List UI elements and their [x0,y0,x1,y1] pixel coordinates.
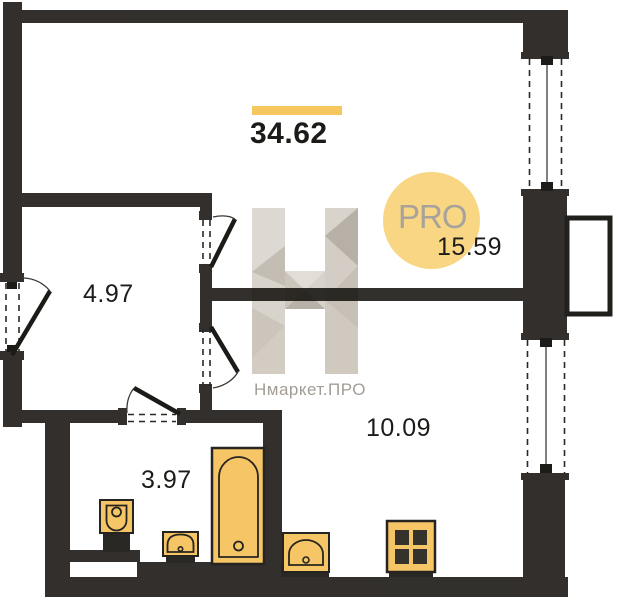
bathroom-door-jamb-left [118,408,127,425]
wall-hall-vertical-c [200,386,212,413]
window-connector [541,182,553,191]
toilet-icon [100,500,133,552]
door-connector [7,282,17,289]
wall-bathroom-kitchen [263,412,282,577]
door-jamb [199,211,212,220]
wall-left-bottom [45,423,70,597]
wall-bottom [45,577,568,597]
window-sill [521,473,569,480]
wall-top [3,10,568,23]
watermark-brand-label: Нмаркет.ПРО [254,380,366,400]
total-area-accent-bar [252,106,342,115]
kitchen-area-label: 10.09 [366,414,431,443]
entrance-door-leaf [12,291,50,355]
stove-burner [395,530,409,545]
hallway-area-label: 4.97 [83,280,134,309]
living-door-arc [213,216,235,219]
stove-burner [413,549,427,564]
window-connector [540,464,552,473]
floor-plan: 34.62 PRO 15.59 4.97 10.09 3.97 Нмаркет.… [0,0,617,600]
wall-left-upper [3,2,22,275]
stove-icon [387,521,435,577]
stove-body [387,521,435,572]
window-connector [540,338,552,347]
wall-hall-top [3,193,212,207]
entrance-jamb-top [0,273,24,282]
pro-badge-label: PRO [398,198,467,236]
wall-living-kitchen [212,288,523,301]
entrance-door-arc [24,278,50,291]
wall-hall-vertical-b [200,266,212,325]
stove-burner [395,549,409,564]
toilet-tank [103,533,130,552]
balcony-outline [567,218,610,314]
wall-bathroom-top-left [3,410,127,423]
washbasin-icon [163,532,198,563]
stove-burner [413,530,427,545]
living-door-leaf [211,219,235,267]
kitchen-sink-icon [281,533,329,577]
living-room-area-label: 15.59 [437,233,502,262]
wall-right-pier [523,196,567,338]
kitchen-door-arc [213,372,238,388]
bathroom-door-leaf [134,388,180,414]
kitchen-door-leaf [211,327,238,372]
wall-right-bottom [523,480,565,597]
wall-right-top-corner [523,10,568,55]
window-connector [541,56,553,65]
bathroom-door-arc [127,388,134,413]
bathtub-icon [212,448,264,564]
total-area-label: 34.62 [250,117,328,151]
bathroom-area-label: 3.97 [141,466,192,495]
